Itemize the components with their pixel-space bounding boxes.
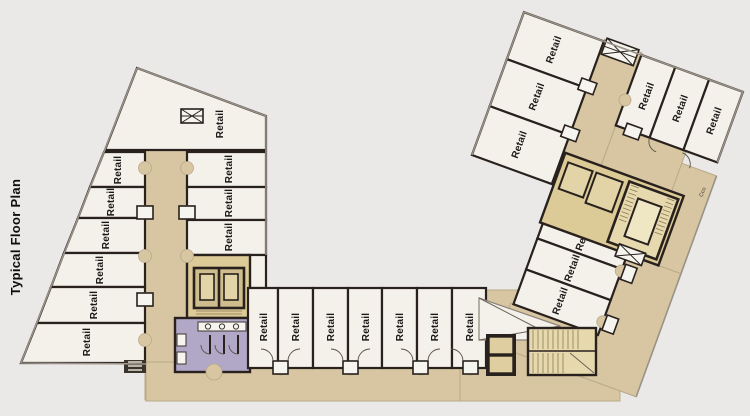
retail-label: Retail xyxy=(224,155,235,183)
bottom-row: Retail Retail Retail Retail Retail Retai… xyxy=(248,288,486,368)
retail-label: Retail xyxy=(326,313,337,341)
retail-label: Retail xyxy=(224,189,235,217)
shaft-icon xyxy=(181,109,203,123)
retail-label: Retail xyxy=(465,313,476,341)
door-icon xyxy=(179,206,195,219)
left-wing: Retail Retail Retail Retail Retail Retai… xyxy=(21,68,266,380)
retail-label: Retail xyxy=(95,256,106,284)
retail-label: Retail xyxy=(106,188,117,216)
elevator-icon xyxy=(486,334,516,376)
floor-plan-drawing: Retail Retail Retail Retail Retail Retai… xyxy=(0,0,750,416)
retail-label: Retail xyxy=(291,313,302,341)
retail-label: Retail xyxy=(101,221,112,249)
retail-label: Retail xyxy=(215,110,226,138)
door-icon xyxy=(137,206,153,219)
retail-label: Retail xyxy=(430,313,441,341)
door-icon xyxy=(124,360,146,373)
page-title: Typical Floor Plan xyxy=(8,179,23,295)
stair-icon xyxy=(528,328,596,375)
door-icon xyxy=(343,361,358,374)
door-icon xyxy=(463,361,478,374)
floor-plan-page: Retail Retail Retail Retail Retail Retai… xyxy=(0,0,750,416)
retail-label: Retail xyxy=(395,313,406,341)
door-icon xyxy=(137,293,153,306)
retail-label: Retail xyxy=(361,313,372,341)
retail-label: Retail xyxy=(89,291,100,319)
retail-label: Retail xyxy=(259,313,270,341)
door-icon xyxy=(273,361,288,374)
door-icon xyxy=(413,361,428,374)
retail-label: Retail xyxy=(113,156,124,184)
retail-label: Retail xyxy=(82,328,93,356)
retail-label: Retail xyxy=(224,223,235,251)
